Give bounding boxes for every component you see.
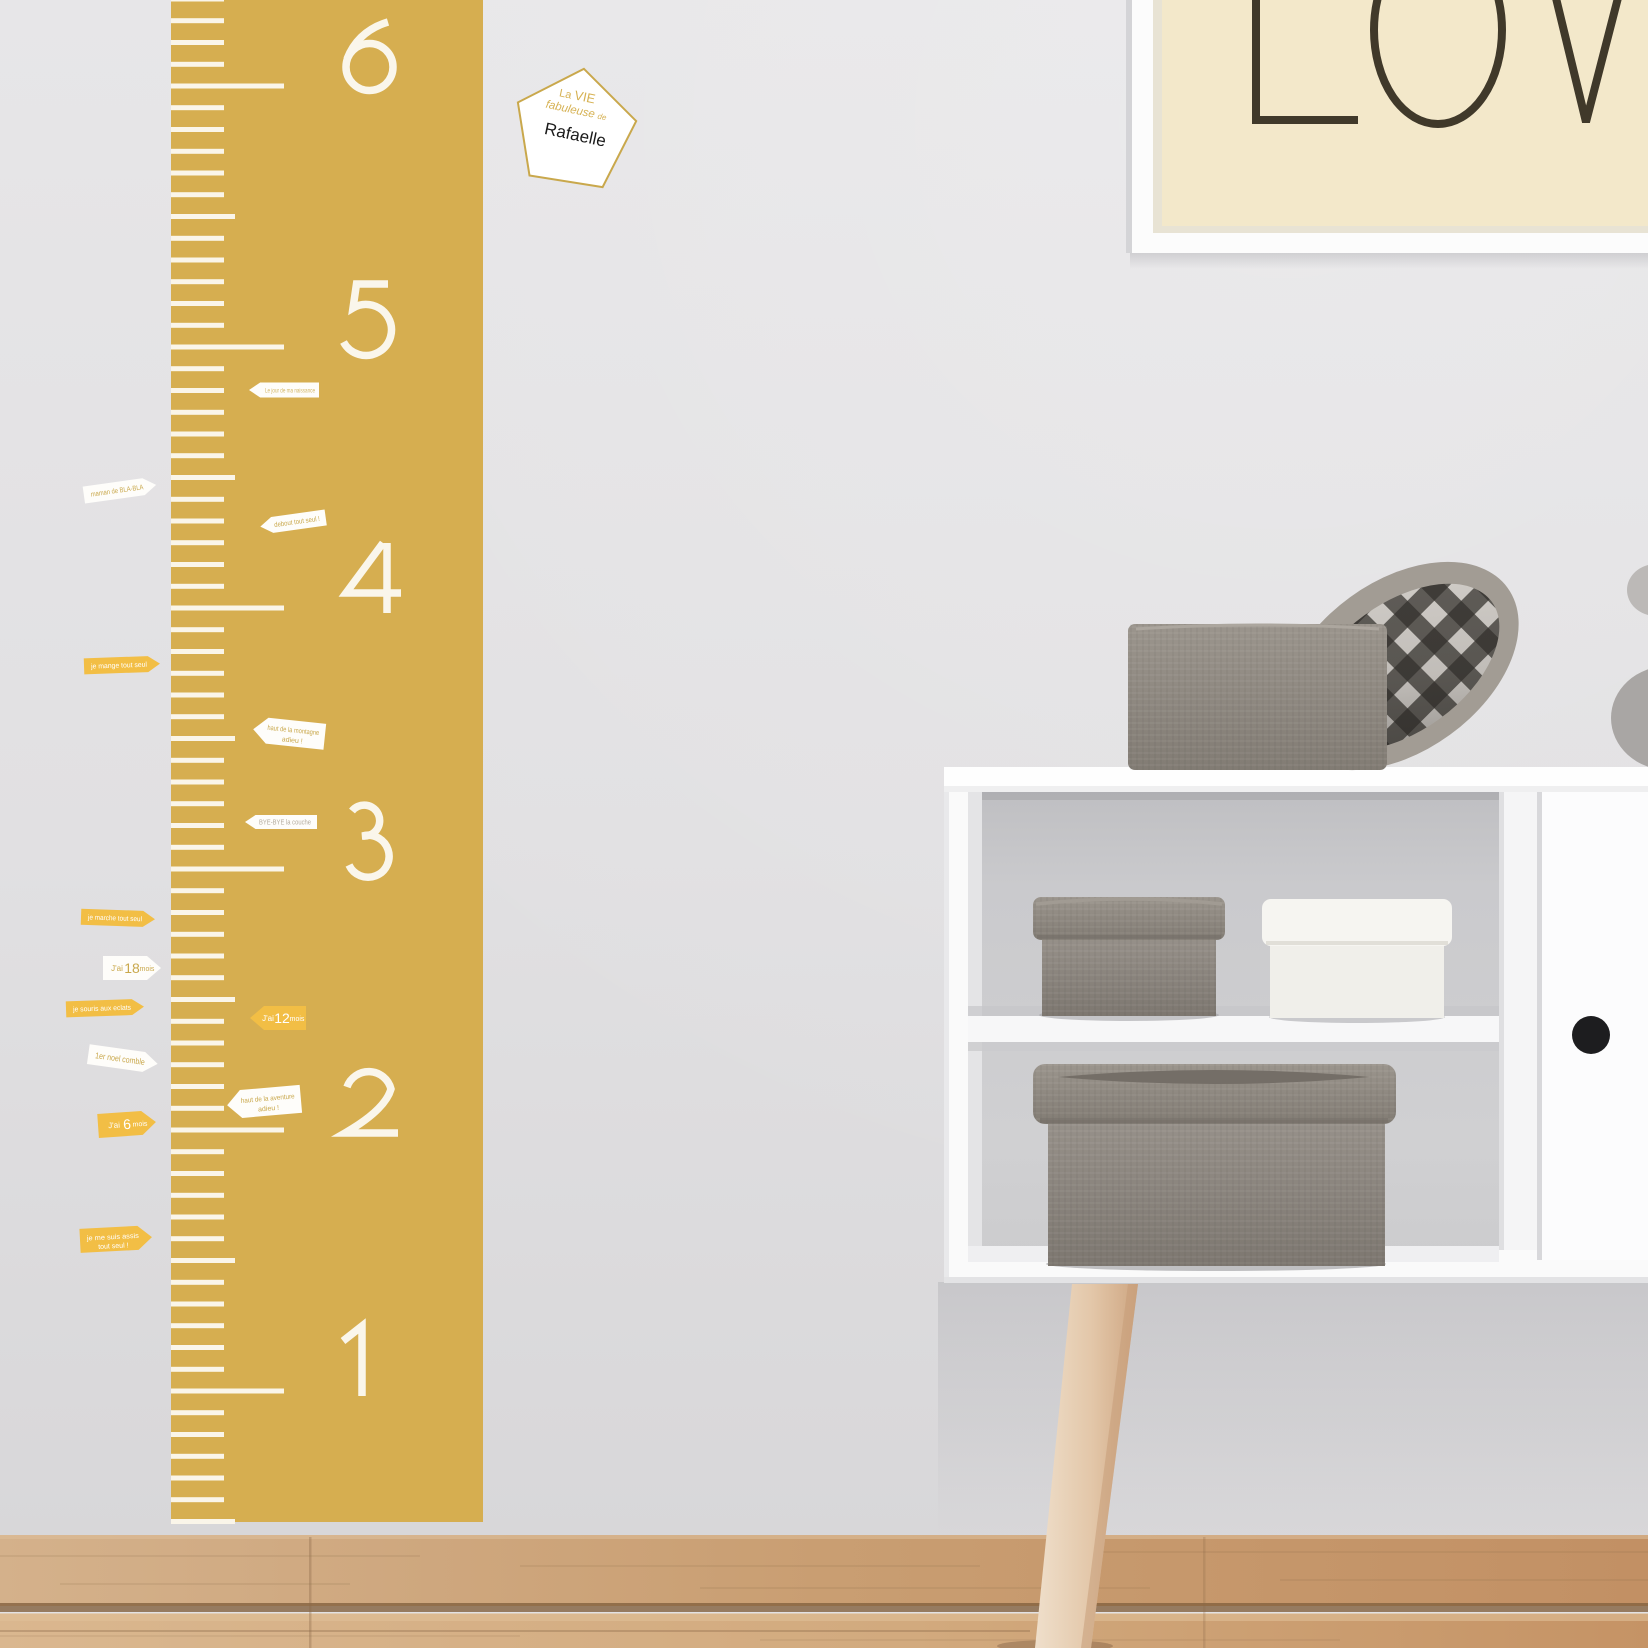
svg-text:6: 6 xyxy=(123,1116,132,1133)
svg-text:12: 12 xyxy=(274,1010,290,1026)
svg-text:J'ai: J'ai xyxy=(108,1120,121,1130)
svg-text:18: 18 xyxy=(124,960,140,976)
svg-text:BYE-BYE la couche: BYE-BYE la couche xyxy=(259,820,311,827)
svg-text:J'ai: J'ai xyxy=(111,964,123,973)
svg-text:mois: mois xyxy=(140,966,155,973)
svg-text:J'ai: J'ai xyxy=(262,1014,274,1023)
svg-text:Le jour de ma naissance: Le jour de ma naissance xyxy=(265,388,315,395)
svg-text:mois: mois xyxy=(290,1016,305,1023)
svg-text:mois: mois xyxy=(132,1121,148,1129)
